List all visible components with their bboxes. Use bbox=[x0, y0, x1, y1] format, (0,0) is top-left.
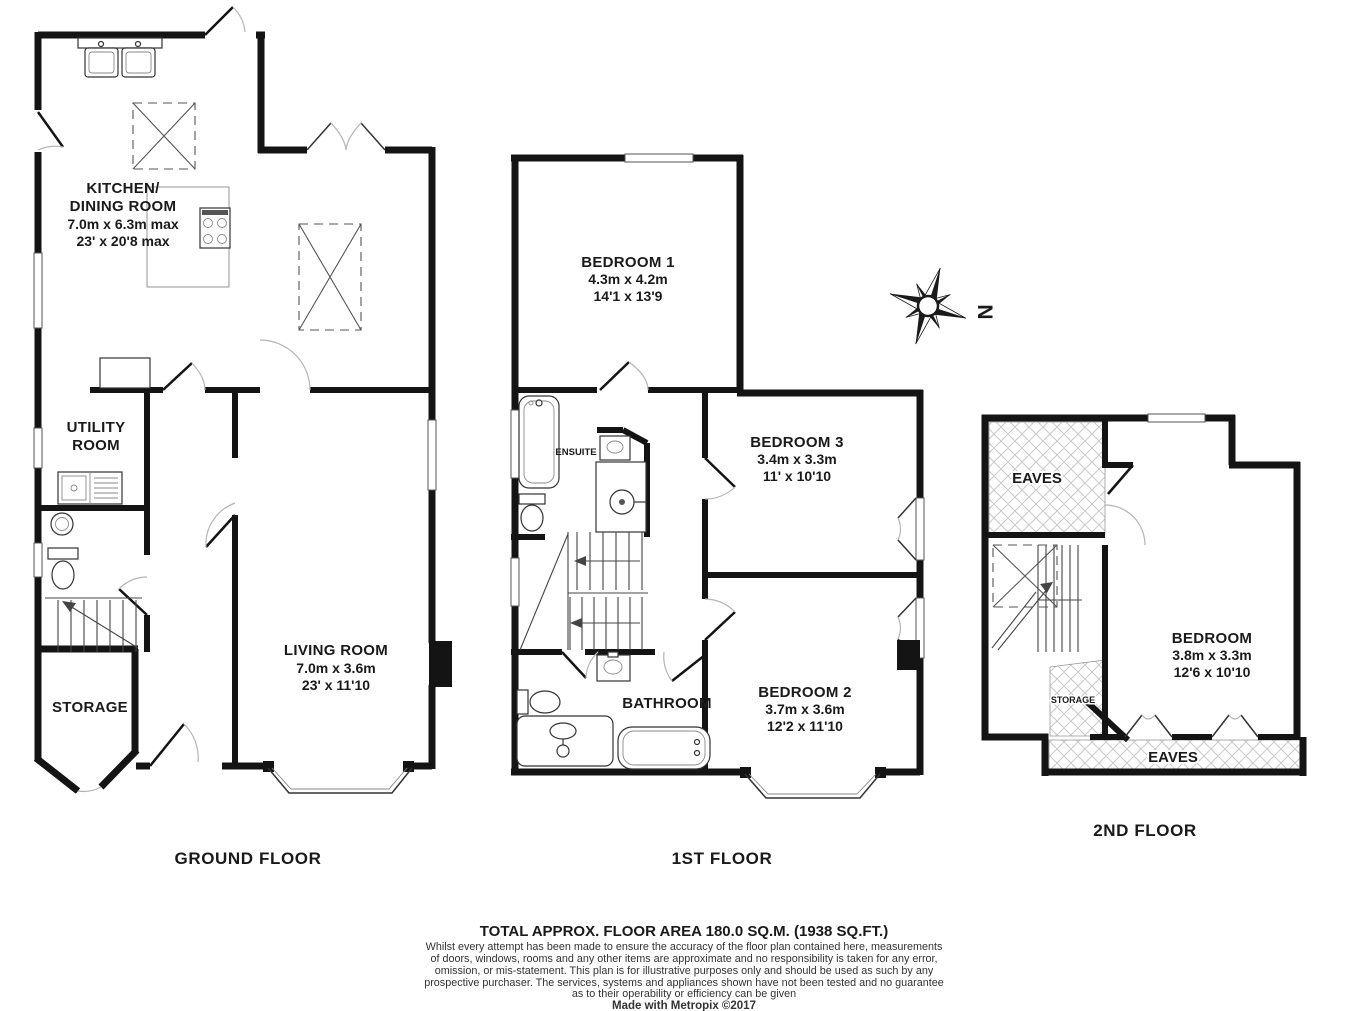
bedroom2-door bbox=[705, 599, 735, 640]
bedroom3-dim-imperial: 11' x 10'10 bbox=[763, 468, 831, 484]
storage-label: STORAGE bbox=[1051, 695, 1095, 705]
chimney bbox=[429, 641, 452, 687]
bedroom-label: BEDROOM bbox=[1172, 630, 1252, 647]
footer: TOTAL APPROX. FLOOR AREA 180.0 SQ.M. (19… bbox=[424, 923, 944, 1011]
storage-label: STORAGE bbox=[52, 699, 128, 716]
kitchen-dim-imperial: 23' x 20'8 max bbox=[76, 233, 169, 249]
disclaimer-text: omission, or mis-statement. This plan is… bbox=[435, 965, 934, 977]
first-floor-plan: BEDROOM 1 4.3m x 4.2m 14'1 x 13'9 BEDROO… bbox=[511, 154, 924, 868]
bedroom3-dim-metric: 3.4m x 3.3m bbox=[757, 451, 836, 467]
bedroom2-label: BEDROOM 2 bbox=[758, 684, 852, 701]
bathtub-icon bbox=[519, 396, 559, 488]
stairs bbox=[45, 598, 142, 652]
compass-rose: N bbox=[878, 256, 996, 357]
skylight-icon bbox=[133, 103, 195, 169]
bathroom-label: BATHROOM bbox=[622, 695, 712, 712]
eaves-label: EAVES bbox=[1012, 470, 1062, 487]
french-doors bbox=[307, 123, 385, 150]
utility-label: UTILITY bbox=[67, 419, 126, 436]
bathtub-icon bbox=[618, 727, 710, 769]
toilet-icon bbox=[517, 690, 560, 714]
landing-sink-icon bbox=[597, 652, 630, 681]
eaves-access-door bbox=[1125, 715, 1172, 737]
front-door bbox=[150, 724, 198, 766]
living-room-dim-imperial: 23' x 11'10 bbox=[302, 677, 370, 693]
toilet-icon bbox=[48, 548, 78, 589]
kitchen-sink-icon bbox=[78, 38, 162, 77]
second-floor-label: 2ND FLOOR bbox=[1093, 821, 1197, 840]
credit-text: Made with Metropix ©2017 bbox=[612, 1000, 756, 1011]
window bbox=[511, 558, 519, 606]
bedroom2-dim-imperial: 12'2 x 11'10 bbox=[767, 718, 843, 734]
total-area-text: TOTAL APPROX. FLOOR AREA 180.0 SQ.M. (19… bbox=[480, 923, 888, 940]
kitchen-top-door bbox=[205, 7, 245, 35]
chimney bbox=[897, 640, 920, 670]
bedroom3-label: BEDROOM 3 bbox=[750, 434, 844, 451]
ground-floor-plan: KITCHEN/ DINING ROOM 7.0m x 6.3m max 23'… bbox=[34, 7, 452, 868]
utility-label: ROOM bbox=[72, 437, 120, 454]
bedroom-dim-imperial: 12'6 x 10'10 bbox=[1174, 664, 1251, 680]
stove-icon bbox=[200, 208, 230, 248]
skylight-icon bbox=[993, 545, 1057, 607]
kitchen-label: DINING ROOM bbox=[70, 198, 177, 215]
window bbox=[34, 253, 42, 328]
living-room-dim-metric: 7.0m x 3.6m bbox=[296, 660, 375, 676]
vanity-sink-icon bbox=[517, 716, 613, 766]
bedroom1-dim-imperial: 14'1 x 13'9 bbox=[594, 288, 663, 304]
north-label: N bbox=[973, 304, 996, 319]
bedroom1-label: BEDROOM 1 bbox=[581, 254, 675, 271]
bedroom3-door bbox=[705, 458, 735, 499]
bedroom1-door bbox=[600, 362, 648, 390]
basin-icon bbox=[51, 513, 73, 535]
stairs bbox=[520, 532, 648, 650]
disclaimer-text: of doors, windows, rooms and any other i… bbox=[430, 953, 937, 965]
first-exterior-walls bbox=[511, 155, 923, 775]
floorplan-page: KITCHEN/ DINING ROOM 7.0m x 6.3m max 23'… bbox=[0, 0, 1350, 1011]
window bbox=[428, 420, 436, 490]
floorplan-drawing: KITCHEN/ DINING ROOM 7.0m x 6.3m max 23'… bbox=[0, 0, 1350, 1011]
kitchen-dim-metric: 7.0m x 6.3m max bbox=[67, 216, 179, 232]
shower-icon bbox=[596, 462, 647, 532]
bedroom2-dim-metric: 3.7m x 3.6m bbox=[765, 701, 844, 717]
window bbox=[511, 410, 519, 478]
appliance bbox=[100, 358, 150, 388]
kitchen-side-door bbox=[38, 112, 63, 150]
window bbox=[34, 543, 42, 577]
window bbox=[625, 154, 693, 162]
casement-window bbox=[898, 498, 924, 560]
first-floor-label: 1ST FLOOR bbox=[672, 849, 773, 868]
kitchen-label: KITCHEN/ bbox=[86, 180, 160, 197]
bay-window bbox=[263, 761, 414, 793]
utility-sink-icon bbox=[58, 472, 122, 504]
bathroom-door bbox=[562, 652, 705, 681]
ground-floor-label: GROUND FLOOR bbox=[175, 849, 322, 868]
bedroom-door bbox=[1105, 465, 1145, 545]
bedroom-dim-metric: 3.8m x 3.3m bbox=[1172, 647, 1251, 663]
disclaimer-text: Whilst every attempt has been made to en… bbox=[426, 941, 943, 953]
toilet-icon bbox=[519, 494, 545, 531]
stairs bbox=[992, 545, 1082, 652]
ensuite-sink-icon bbox=[600, 436, 630, 460]
ensuite-label: ENSUITE bbox=[555, 447, 596, 458]
skylight-icon bbox=[299, 224, 361, 330]
bedroom1-dim-metric: 4.3m x 4.2m bbox=[588, 271, 667, 287]
window bbox=[1148, 414, 1205, 422]
window bbox=[34, 428, 42, 468]
eaves-label: EAVES bbox=[1148, 749, 1198, 766]
bay-window bbox=[740, 767, 886, 798]
storage-door bbox=[78, 787, 101, 792]
second-floor-plan: EAVES BEDROOM 3.8m x 3.3m 12'6 x 10'10 S… bbox=[985, 414, 1306, 840]
eaves-access-door bbox=[1212, 715, 1258, 737]
disclaimer-text: as to their operability or efficiency ca… bbox=[572, 988, 796, 1000]
living-room-label: LIVING ROOM bbox=[284, 642, 388, 659]
